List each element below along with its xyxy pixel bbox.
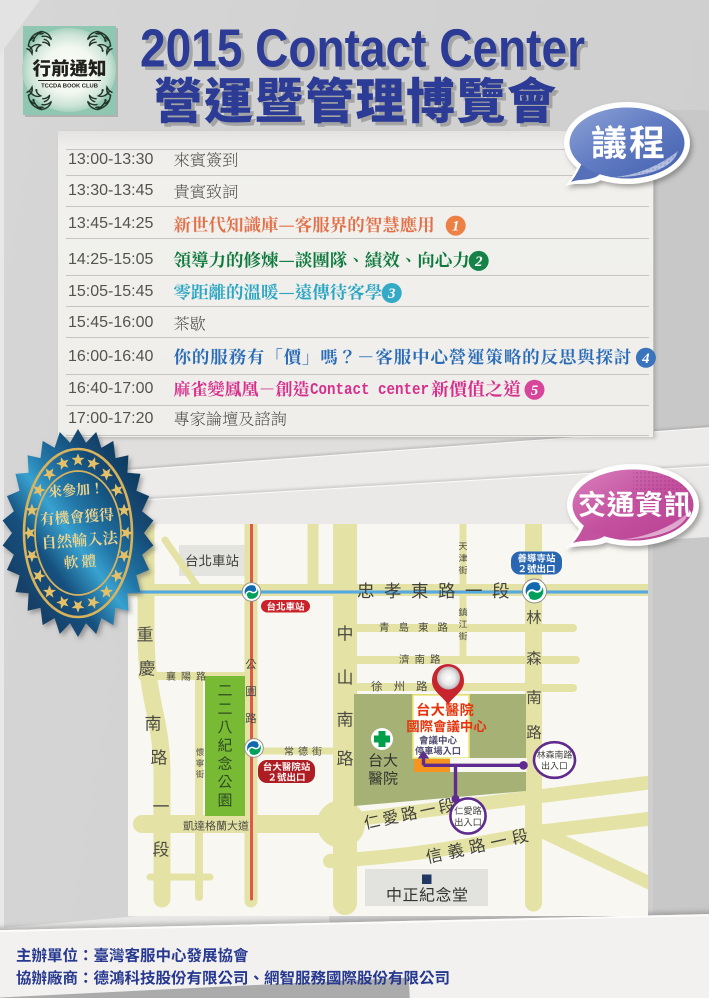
svg-text:2015 Contact Center: 2015 Contact Center — [140, 19, 585, 79]
svg-text:TCCDA BOOK CLUB: TCCDA BOOK CLUB — [41, 84, 98, 90]
svg-text:5: 5 — [531, 383, 539, 399]
svg-text:3: 3 — [387, 286, 396, 302]
svg-text:1: 1 — [452, 219, 460, 235]
svg-text:4: 4 — [641, 351, 650, 367]
svg-text:Contact center: Contact center — [310, 380, 429, 399]
svg-text:2: 2 — [474, 254, 483, 270]
